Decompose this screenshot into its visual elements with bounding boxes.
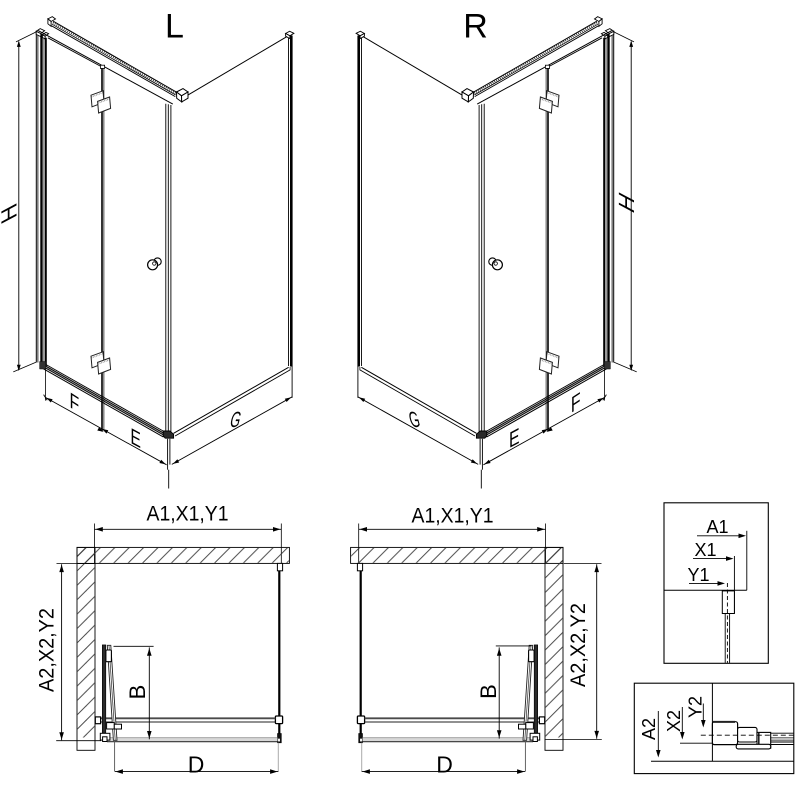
svg-text:Y2: Y2 — [685, 696, 705, 718]
svg-text:L: L — [165, 8, 184, 46]
svg-text:X2: X2 — [664, 710, 684, 732]
svg-text:D: D — [188, 752, 205, 778]
svg-text:Y1: Y1 — [687, 565, 709, 585]
svg-text:D: D — [436, 752, 453, 778]
svg-text:A1,X1,Y1: A1,X1,Y1 — [147, 503, 229, 526]
svg-text:A2,X2,Y2: A2,X2,Y2 — [567, 603, 590, 687]
svg-text:A1,X1,Y1: A1,X1,Y1 — [412, 505, 494, 528]
svg-text:X1: X1 — [694, 540, 716, 560]
svg-text:A1: A1 — [706, 517, 728, 537]
svg-text:B: B — [476, 684, 501, 699]
svg-text:A2,X2,Y2: A2,X2,Y2 — [36, 608, 59, 692]
svg-text:A2: A2 — [639, 718, 659, 740]
svg-text:B: B — [125, 685, 150, 700]
svg-text:R: R — [463, 8, 488, 46]
